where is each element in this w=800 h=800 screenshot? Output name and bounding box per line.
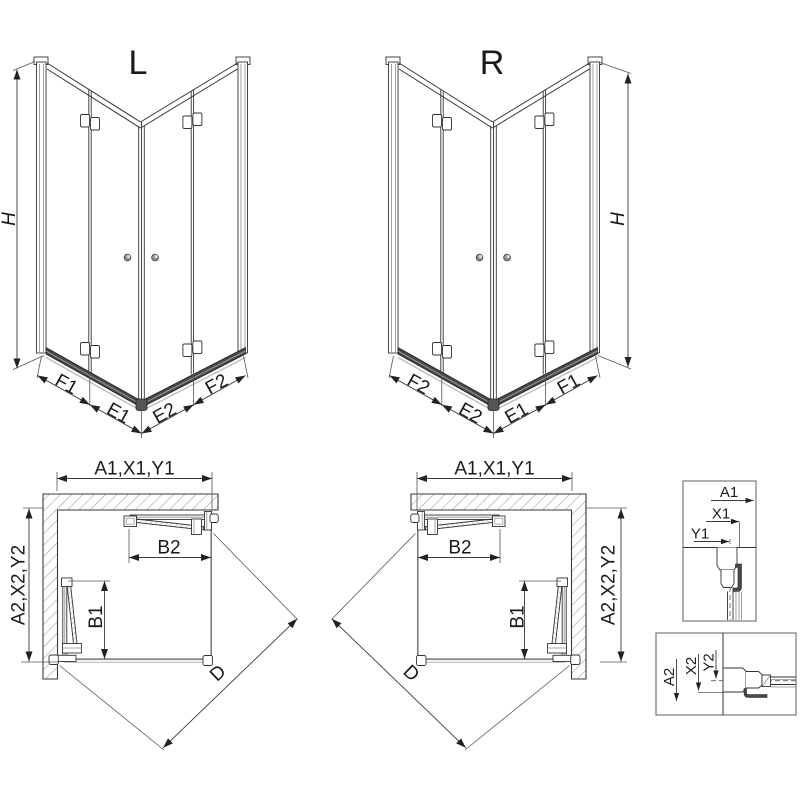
iso-view-left: L H F1 E1 E2 F2 <box>0 44 250 438</box>
iso-view-right: R H F2 E2 E1 F1 <box>386 44 631 438</box>
dim-label-e1: E1 <box>502 399 533 429</box>
detail-dim-x1: X1 <box>712 506 730 523</box>
dim-label-a1x1y1: A1,X1,Y1 <box>94 459 174 480</box>
technical-drawing: L H F1 E1 E2 F2 R H F2 E2 E1 F1 A1,X1,Y1… <box>0 0 800 800</box>
plan-view-left: A1,X1,Y1 A2,X2,Y2 B2 B1 D <box>9 459 298 751</box>
drawing-sheet: L H F1 E1 E2 F2 R H F2 E2 E1 F1 A1,X1,Y1… <box>0 0 800 800</box>
detail-dim-y1: Y1 <box>691 526 709 543</box>
dim-label-height: H <box>608 212 629 226</box>
dim-label-a1x1y1: A1,X1,Y1 <box>454 459 534 480</box>
plan-view-right: A1,X1,Y1 A2,X2,Y2 B2 B1 D <box>332 459 628 751</box>
detail-dim-a1: A1 <box>720 484 738 501</box>
detail-dim-a2: A2 <box>661 668 678 686</box>
profile-section <box>717 548 737 571</box>
detail-wall-profile-vertical-dims: A2 X2 Y2 <box>656 633 796 715</box>
dim-label-b1: B1 <box>508 605 529 628</box>
view-title-left: L <box>129 44 148 82</box>
dim-label-e2: E2 <box>150 399 181 429</box>
dim-label-b2: B2 <box>448 538 471 559</box>
view-title-right: R <box>480 44 505 82</box>
dim-label-b2: B2 <box>157 538 180 559</box>
dim-label-b1: B1 <box>86 605 107 628</box>
dim-label-a2x2y2: A2,X2,Y2 <box>599 545 620 625</box>
detail-dim-y2: Y2 <box>701 653 718 671</box>
detail-dim-x2: X2 <box>683 657 700 675</box>
dim-label-a2x2y2: A2,X2,Y2 <box>9 545 30 625</box>
dim-label-height: H <box>0 212 20 226</box>
detail-wall-profile-horizontal-dims: A1 X1 Y1 <box>683 481 756 621</box>
profile-section <box>724 668 747 692</box>
